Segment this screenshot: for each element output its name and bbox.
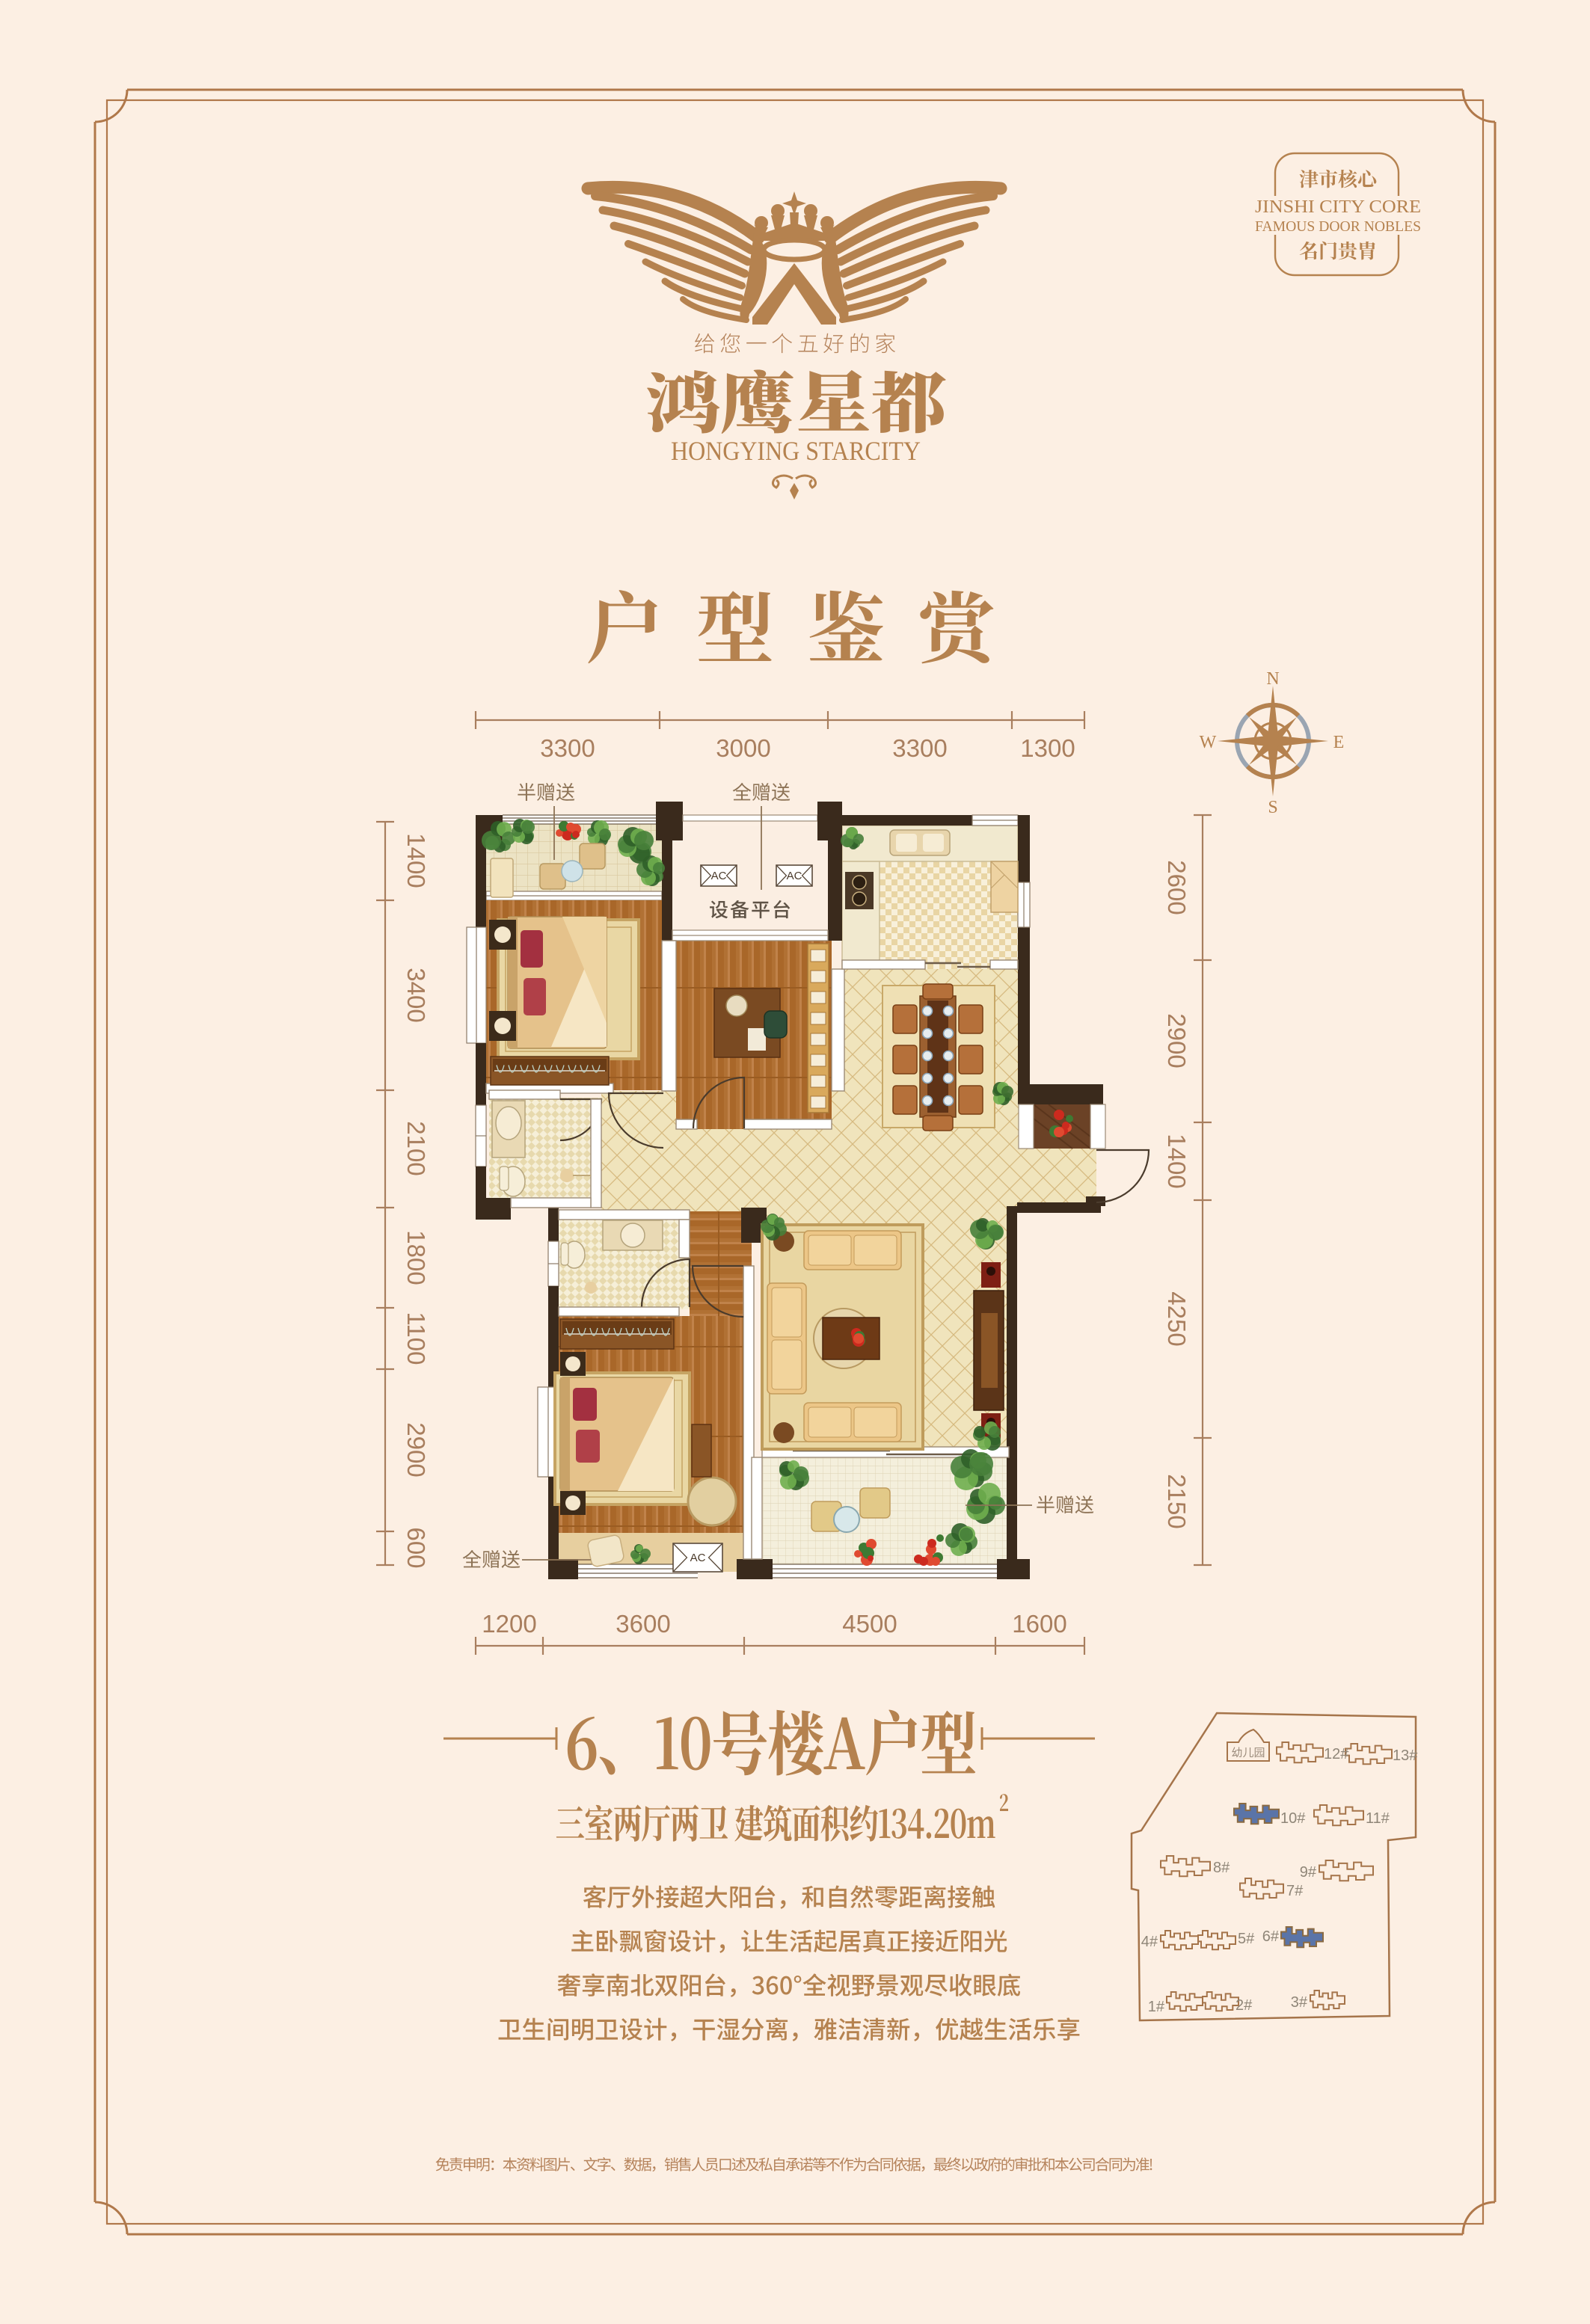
svg-text:2900: 2900 xyxy=(1163,1013,1191,1068)
svg-text:2150: 2150 xyxy=(1163,1474,1191,1528)
svg-text:600: 600 xyxy=(402,1527,430,1568)
svg-text:N: N xyxy=(1266,669,1279,689)
svg-text:AC: AC xyxy=(787,870,802,882)
svg-text:HONGYING STARCITY: HONGYING STARCITY xyxy=(671,436,921,466)
svg-text:1#: 1# xyxy=(1148,1999,1165,2015)
svg-text:3600: 3600 xyxy=(616,1610,670,1638)
svg-text:JINSHI CITY CORE: JINSHI CITY CORE xyxy=(1255,197,1421,217)
svg-text:4250: 4250 xyxy=(1163,1291,1191,1346)
svg-text:2600: 2600 xyxy=(1163,860,1191,914)
svg-text:1400: 1400 xyxy=(1163,1134,1191,1188)
svg-text:2#: 2# xyxy=(1236,1997,1253,2014)
svg-text:1600: 1600 xyxy=(1012,1610,1066,1638)
svg-text:5#: 5# xyxy=(1238,1931,1255,1947)
svg-text:3#: 3# xyxy=(1291,1994,1308,2011)
svg-text:12#: 12# xyxy=(1324,1746,1349,1762)
svg-text:3000: 3000 xyxy=(716,734,770,762)
svg-text:AC: AC xyxy=(711,870,727,882)
svg-text:3300: 3300 xyxy=(540,734,595,762)
svg-text:3300: 3300 xyxy=(892,734,947,762)
svg-text:4#: 4# xyxy=(1141,1934,1158,1950)
svg-text:AC: AC xyxy=(690,1552,706,1564)
svg-text:1300: 1300 xyxy=(1020,734,1075,762)
svg-text:2100: 2100 xyxy=(402,1121,430,1175)
svg-text:8#: 8# xyxy=(1213,1860,1230,1876)
svg-text:6#: 6# xyxy=(1262,1928,1280,1945)
svg-text:S: S xyxy=(1268,798,1277,817)
svg-text:1800: 1800 xyxy=(402,1230,430,1285)
svg-text:11#: 11# xyxy=(1366,1810,1390,1827)
svg-text:W: W xyxy=(1200,733,1217,752)
svg-text:2900: 2900 xyxy=(402,1422,430,1477)
svg-text:E: E xyxy=(1333,733,1345,752)
svg-text:FAMOUS DOOR NOBLES: FAMOUS DOOR NOBLES xyxy=(1255,218,1421,235)
svg-text:1100: 1100 xyxy=(402,1312,430,1365)
svg-text:9#: 9# xyxy=(1300,1864,1317,1881)
svg-text:1400: 1400 xyxy=(402,833,430,888)
svg-text:7#: 7# xyxy=(1286,1883,1304,1899)
svg-text:4500: 4500 xyxy=(842,1610,897,1638)
svg-text:1200: 1200 xyxy=(482,1610,536,1638)
svg-text:3400: 3400 xyxy=(402,968,430,1022)
svg-text:13#: 13# xyxy=(1393,1747,1418,1764)
svg-text:10#: 10# xyxy=(1280,1810,1306,1827)
